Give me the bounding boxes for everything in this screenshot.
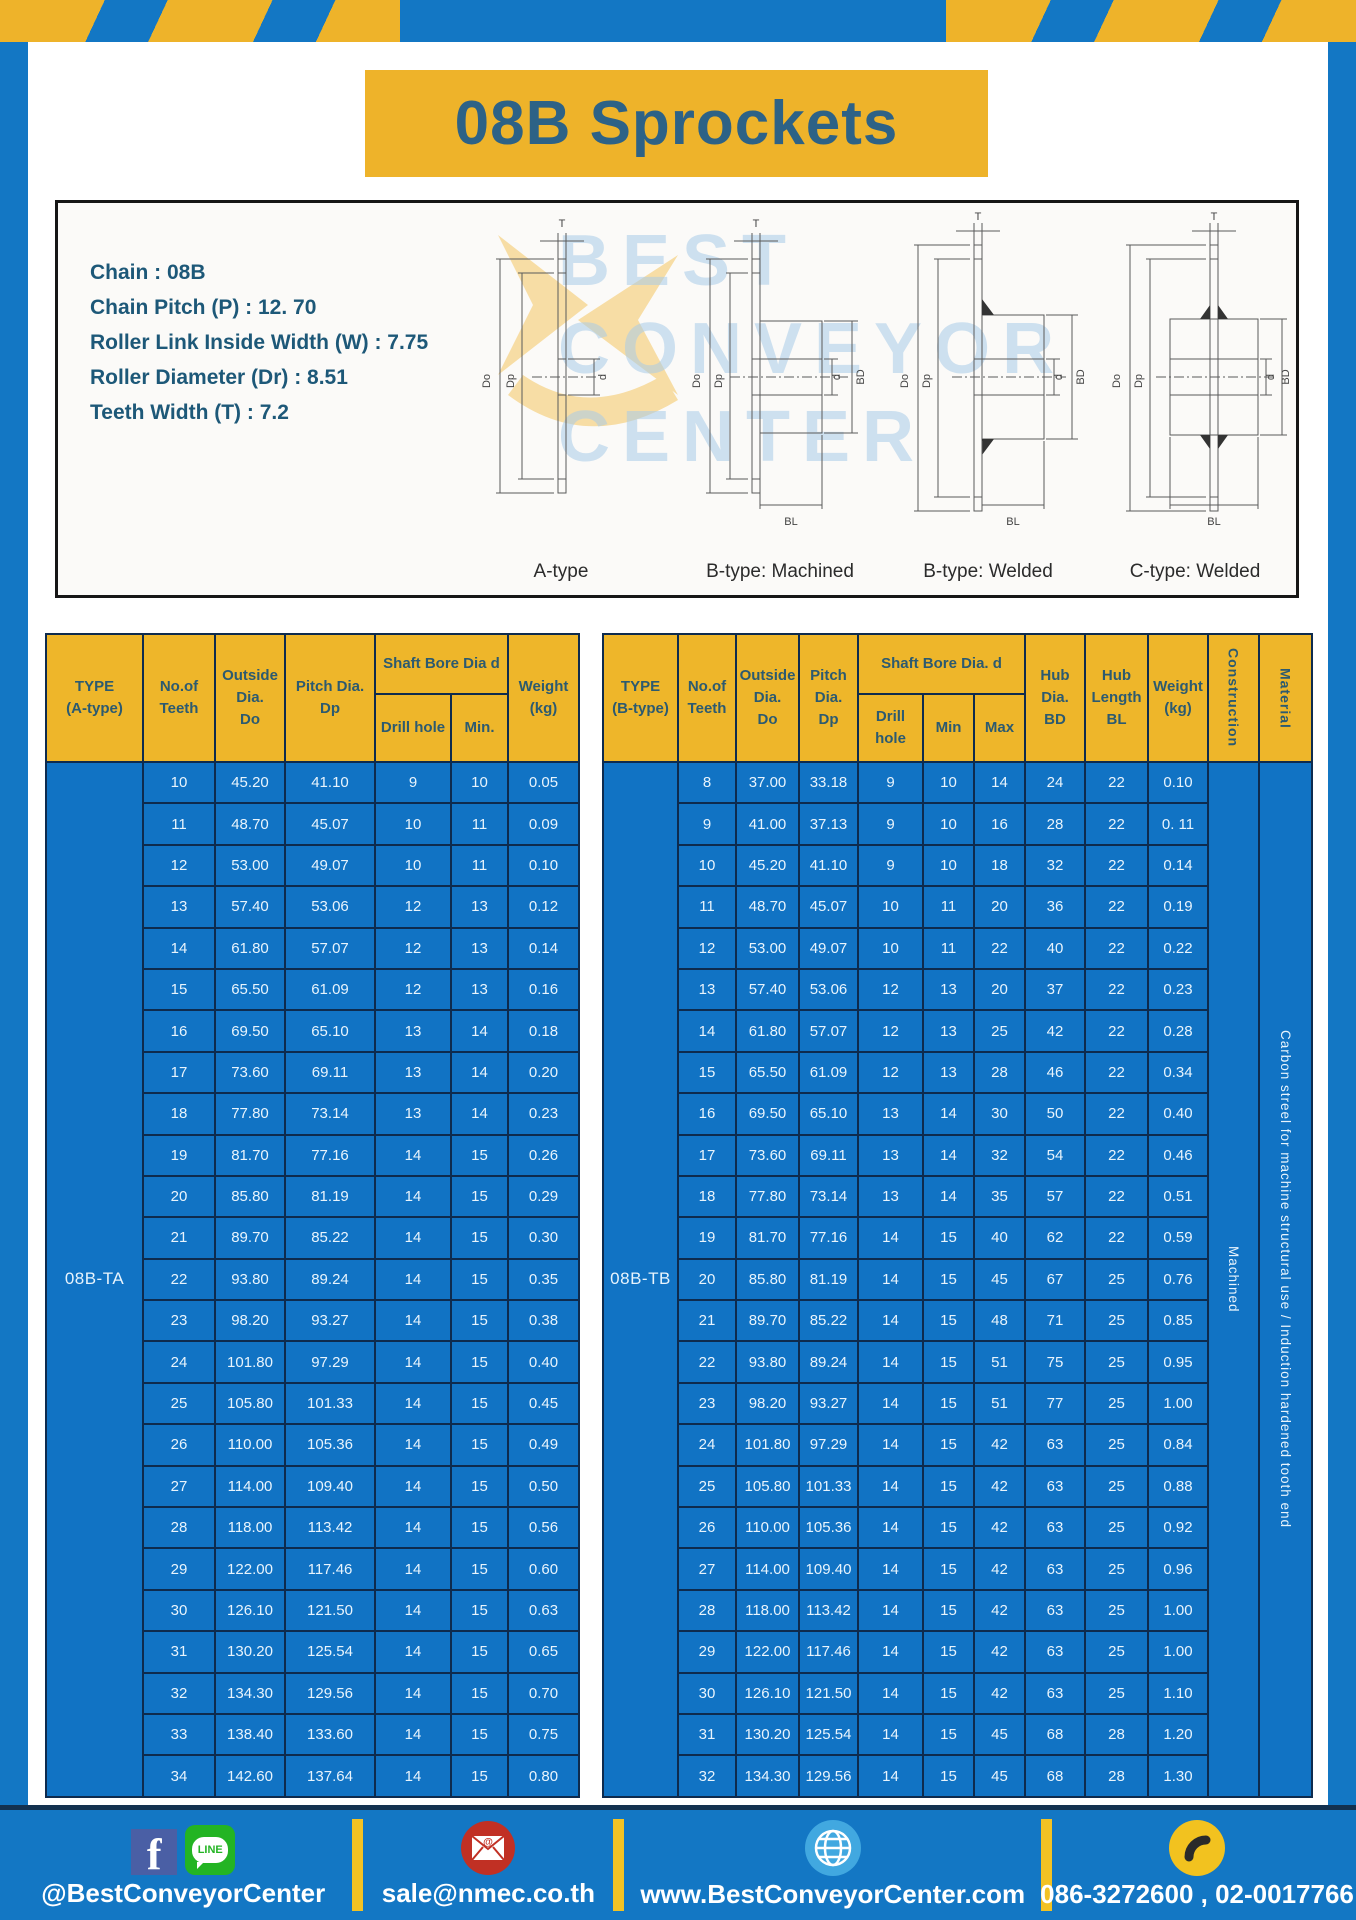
svg-text:T: T [753,218,760,230]
table-cell: 105.80 [736,1466,799,1507]
table-cell: 14 [375,1755,451,1796]
svg-text:BL: BL [1207,516,1220,528]
table-cell: 0.70 [508,1673,579,1714]
c-type-welded-drawing: T Do Dp [1100,211,1290,587]
table-cell: 130.20 [215,1631,285,1672]
table-row: 1253.0049.0710112240220.22 [603,928,1312,969]
table-cell: 16 [974,803,1025,844]
table-cell: 61.80 [736,1010,799,1051]
table-cell: 13 [451,886,508,927]
diagram-caption-c-welded: C-type: Welded [1130,561,1261,587]
table-cell: 30 [678,1673,736,1714]
table-cell: 57.07 [799,1010,858,1051]
table-cell: 10 [143,762,215,803]
table-cell: 14 [375,1217,451,1258]
table-cell: 0.26 [508,1135,579,1176]
table-cell: 0.59 [1148,1217,1208,1258]
col-shaft-bore-a: Shaft Bore Dia d [375,634,508,694]
table-cell: 0.12 [508,886,579,927]
table-cell: 0.50 [508,1466,579,1507]
vertical-text-cell: Machined [1208,762,1259,1797]
table-cell: 22 [1085,969,1148,1010]
footer-social: f LINE @BestConveyorCenter [14,1821,352,1909]
table-cell: 122.00 [215,1548,285,1589]
col-min-b: Min [923,694,974,762]
table-cell: 89.70 [215,1217,285,1258]
spec-roller-width: Roller Link Inside Width (W) : 7.75 [90,325,428,360]
svg-text:Dp: Dp [505,374,517,388]
table-cell: 10 [375,803,451,844]
table-cell: 45 [974,1259,1025,1300]
table-cell: 65.10 [799,1093,858,1134]
table-cell: 25 [1085,1631,1148,1672]
table-cell: 28 [143,1507,215,1548]
footer-phone: 086-3272600 , 02-0017766 [1052,1820,1342,1910]
table-cell: 0.95 [1148,1341,1208,1382]
table-cell: 121.50 [285,1590,375,1631]
table-cell: 98.20 [215,1300,285,1341]
phone-label: 086-3272600 , 02-0017766 [1040,1879,1354,1910]
line-icon: LINE [185,1825,235,1875]
table-cell: 22 [1085,845,1148,886]
table-cell: 14 [858,1217,923,1258]
table-row: 29122.00117.4614154263251.00 [603,1631,1312,1672]
table-cell: 33 [143,1714,215,1755]
table-cell: 81.70 [736,1217,799,1258]
table-cell: 17 [678,1135,736,1176]
col-hub-dia-b: Hub Dia. BD [1025,634,1085,762]
table-cell: 20 [678,1259,736,1300]
table-cell: 36 [1025,886,1085,927]
email-label: sale@nmec.co.th [382,1878,595,1909]
table-cell: 37.00 [736,762,799,803]
table-row: 1461.8057.0712132542220.28 [603,1010,1312,1051]
table-cell: 10 [858,886,923,927]
table-cell: 93.80 [736,1341,799,1382]
table-cell: 28 [1085,1714,1148,1755]
table-cell: 41.10 [285,762,375,803]
email-icon: @ [461,1821,515,1875]
table-cell: 113.42 [285,1507,375,1548]
page-title: 08B Sprockets [365,70,988,177]
table-cell: 42 [974,1673,1025,1714]
table-cell: 1.00 [1148,1383,1208,1424]
table-cell: 137.64 [285,1755,375,1796]
table-cell: 69.11 [285,1052,375,1093]
page-title-text: 08B Sprockets [455,88,899,159]
chain-specs: Chain : 08B Chain Pitch (P) : 12. 70 Rol… [90,255,428,430]
table-cell: 24 [678,1424,736,1465]
table-cell: 24 [1025,762,1085,803]
sprockets-table-a: TYPE (A-type) No.of Teeth Outside Dia. D… [45,633,580,1798]
table-cell: 114.00 [736,1548,799,1589]
table-cell: 109.40 [799,1548,858,1589]
table-cell: 23 [143,1300,215,1341]
table-cell: 15 [923,1300,974,1341]
table-cell: 12 [375,969,451,1010]
table-cell: 77 [1025,1383,1085,1424]
table-cell: 57.40 [736,969,799,1010]
table-cell: 134.30 [215,1673,285,1714]
table-cell: 71 [1025,1300,1085,1341]
table-cell: 30 [974,1093,1025,1134]
table-cell: 10 [923,845,974,886]
table-cell: 10 [923,762,974,803]
svg-text:BD: BD [855,369,867,384]
table-cell: 0.14 [1148,845,1208,886]
table-cell: 37 [1025,969,1085,1010]
svg-text:Do: Do [691,374,703,388]
table-cell: 75 [1025,1341,1085,1382]
table-cell: 77.80 [215,1093,285,1134]
table-cell: 89.24 [285,1259,375,1300]
table-cell: 14 [858,1466,923,1507]
table-cell: 16 [143,1010,215,1051]
table-cell: 0.35 [508,1259,579,1300]
table-cell: 109.40 [285,1466,375,1507]
table-cell: 42 [974,1631,1025,1672]
table-cell: 0.40 [1148,1093,1208,1134]
table-cell: 118.00 [215,1507,285,1548]
table-cell: 22 [1085,1093,1148,1134]
table-cell: 97.29 [285,1341,375,1382]
table-cell: 34 [143,1755,215,1796]
table-cell: 0.10 [508,845,579,886]
col-hub-length-b: Hub Length BL [1085,634,1148,762]
table-cell: 13 [858,1093,923,1134]
table-cell: 22 [1085,1176,1148,1217]
table-cell: 14 [375,1631,451,1672]
table-cell: 110.00 [215,1424,285,1465]
table-cell: 53.00 [215,845,285,886]
table-cell: 130.20 [736,1714,799,1755]
table-cell: 28 [1085,1755,1148,1796]
table-cell: 0.88 [1148,1466,1208,1507]
table-cell: 12 [678,928,736,969]
table-cell: 93.80 [215,1259,285,1300]
table-cell: 69.50 [215,1010,285,1051]
table-cell: 98.20 [736,1383,799,1424]
table-cell: 26 [678,1507,736,1548]
table-cell: 15 [451,1755,508,1796]
table-row: 1148.7045.0710112036220.19 [603,886,1312,927]
table-row: 2189.7085.2214154871250.85 [603,1300,1312,1341]
table-cell: 17 [143,1052,215,1093]
table-cell: 42 [974,1424,1025,1465]
table-cell: 15 [923,1507,974,1548]
table-cell: 37.13 [799,803,858,844]
vertical-text-cell: Carbon streel for machine structural use… [1259,762,1312,1797]
col-weight-b: Weight (kg) [1148,634,1208,762]
table-row: 32134.30129.5614154568281.30 [603,1755,1312,1796]
table-cell: 25 [1085,1300,1148,1341]
type-cell: 08B-TB [603,762,678,1797]
phone-icon [1169,1820,1225,1876]
table-cell: 15 [923,1217,974,1258]
table-cell: 54 [1025,1135,1085,1176]
table-cell: 14 [375,1135,451,1176]
table-row: 1045.2041.109101832220.14 [603,845,1312,886]
table-cell: 0.16 [508,969,579,1010]
table-cell: 0.40 [508,1341,579,1382]
svg-text:BD: BD [1075,369,1087,384]
table-cell: 1.20 [1148,1714,1208,1755]
table-cell: 69.11 [799,1135,858,1176]
table-cell: 11 [923,928,974,969]
a-type-drawing: T Do Dp d A-type [466,211,656,587]
table-cell: 15 [451,1590,508,1631]
table-cell: 63 [1025,1424,1085,1465]
table-cell: 89.24 [799,1341,858,1382]
table-cell: 0.34 [1148,1052,1208,1093]
table-cell: 18 [678,1176,736,1217]
table-cell: 15 [923,1341,974,1382]
table-cell: 9 [858,762,923,803]
table-cell: 63 [1025,1507,1085,1548]
table-cell: 14 [858,1548,923,1589]
table-cell: 0.29 [508,1176,579,1217]
table-cell: 0.23 [508,1093,579,1134]
table-cell: 77.16 [799,1217,858,1258]
table-cell: 97.29 [799,1424,858,1465]
col-type-a: TYPE (A-type) [46,634,143,762]
table-cell: 12 [858,1010,923,1051]
table-cell: 0.92 [1148,1507,1208,1548]
table-cell: 15 [923,1466,974,1507]
table-cell: 14 [375,1341,451,1382]
table-cell: 113.42 [799,1590,858,1631]
table-cell: 63 [1025,1631,1085,1672]
table-cell: 15 [923,1714,974,1755]
footer-divider [613,1819,624,1911]
table-cell: 45.07 [285,803,375,844]
table-cell: 110.00 [736,1507,799,1548]
table-cell: 15 [451,1176,508,1217]
svg-text:d: d [1053,374,1065,380]
table-cell: 53.06 [799,969,858,1010]
table-cell: 134.30 [736,1755,799,1796]
table-row: 2085.8081.1914154567250.76 [603,1259,1312,1300]
top-stripe-bar [0,0,1356,42]
table-cell: 85.80 [736,1259,799,1300]
col-pitch-b: Pitch Dia. Dp [799,634,858,762]
table-cell: 15 [451,1135,508,1176]
table-row: 2398.2093.2714155177251.00 [603,1383,1312,1424]
table-cell: 57.07 [285,928,375,969]
table-cell: 93.27 [799,1383,858,1424]
table-cell: 21 [678,1300,736,1341]
svg-text:BL: BL [784,516,797,528]
table-cell: 15 [451,1217,508,1258]
table-cell: 22 [678,1341,736,1382]
table-cell: 22 [1085,1217,1148,1258]
svg-text:Dp: Dp [1133,374,1145,388]
table-cell: 26 [143,1424,215,1465]
table-cell: 13 [858,1176,923,1217]
svg-text:Do: Do [899,374,911,388]
table-cell: 32 [143,1673,215,1714]
table-cell: 41.10 [799,845,858,886]
col-max-b: Max [974,694,1025,762]
table-cell: 50 [1025,1093,1085,1134]
table-cell: 14 [375,1714,451,1755]
table-cell: 1.30 [1148,1755,1208,1796]
table-cell: 22 [143,1259,215,1300]
table-cell: 14 [375,1548,451,1589]
table-cell: 25 [143,1383,215,1424]
table-cell: 14 [858,1300,923,1341]
table-row: 1773.6069.1113143254220.46 [603,1135,1312,1176]
table-cell: 0.38 [508,1300,579,1341]
table-cell: 57 [1025,1176,1085,1217]
table-cell: 12 [858,1052,923,1093]
table-cell: 105.36 [799,1507,858,1548]
table-cell: 18 [974,845,1025,886]
col-drill-b: Drill hole [858,694,923,762]
col-shaft-bore-b: Shaft Bore Dia. d [858,634,1025,694]
website-label: www.BestConveyorCenter.com [640,1879,1025,1910]
table-cell: 61.09 [285,969,375,1010]
table-cell: 53.06 [285,886,375,927]
table-cell: 32 [1025,845,1085,886]
table-cell: 101.33 [799,1466,858,1507]
table-cell: 0.75 [508,1714,579,1755]
table-cell: 28 [1025,803,1085,844]
footer-email: @ sale@nmec.co.th [363,1821,613,1909]
table-cell: 61.80 [215,928,285,969]
table-cell: 101.80 [215,1341,285,1382]
table-cell: 13 [451,969,508,1010]
table-cell: 0.49 [508,1424,579,1465]
col-outside-a: Outside Dia. Do [215,634,285,762]
table-cell: 126.10 [215,1590,285,1631]
table-cell: 9 [858,803,923,844]
col-material-b: Material [1259,634,1312,762]
table-cell: 12 [375,886,451,927]
b-type-welded-drawing: T Do Dp d [888,211,1088,587]
table-cell: 15 [451,1466,508,1507]
table-cell: 48.70 [736,886,799,927]
table-cell: 14 [858,1383,923,1424]
table-cell: 25 [1085,1424,1148,1465]
table-cell: 42 [974,1507,1025,1548]
svg-text:BL: BL [1006,516,1019,528]
table-cell: 27 [678,1548,736,1589]
table-cell: 13 [858,1135,923,1176]
table-cell: 73.60 [215,1052,285,1093]
table-cell: 12 [143,845,215,886]
table-cell: 15 [451,1673,508,1714]
table-cell: 15 [923,1590,974,1631]
table-cell: 0.20 [508,1052,579,1093]
table-cell: 0.10 [1148,762,1208,803]
table-row: 24101.8097.2914154263250.84 [603,1424,1312,1465]
table-cell: 25 [678,1466,736,1507]
table-cell: 42 [1025,1010,1085,1051]
table-cell: 42 [974,1590,1025,1631]
table-cell: 19 [678,1217,736,1258]
table-cell: 0.63 [508,1590,579,1631]
table-cell: 13 [143,886,215,927]
table-cell: 10 [858,928,923,969]
footer-divider [352,1819,363,1911]
table-cell: 1.10 [1148,1673,1208,1714]
svg-text:Do: Do [481,374,493,388]
table-cell: 9 [858,845,923,886]
table-cell: 14 [375,1590,451,1631]
col-drill-a: Drill hole [375,694,451,762]
table-cell: 15 [451,1259,508,1300]
table-cell: 0.80 [508,1755,579,1796]
table-cell: 121.50 [799,1673,858,1714]
table-cell: 25 [1085,1507,1148,1548]
table-cell: 67 [1025,1259,1085,1300]
table-cell: 105.36 [285,1424,375,1465]
table-cell: 11 [143,803,215,844]
table-cell: 138.40 [215,1714,285,1755]
table-cell: 33.18 [799,762,858,803]
table-cell: 49.07 [285,845,375,886]
table-cell: 68 [1025,1714,1085,1755]
svg-text:Dp: Dp [921,374,933,388]
table-cell: 57.40 [215,886,285,927]
table-cell: 73.60 [736,1135,799,1176]
table-cell: 25 [1085,1383,1148,1424]
svg-text:d: d [597,374,609,380]
table-cell: 49.07 [799,928,858,969]
table-cell: 14 [375,1176,451,1217]
table-cell: 117.46 [799,1631,858,1672]
social-handle-label: @BestConveyorCenter [41,1878,325,1909]
table-cell: 13 [375,1052,451,1093]
table-cell: 22 [1085,803,1148,844]
table-row: 1565.5061.0912132846220.34 [603,1052,1312,1093]
table-cell: 9 [375,762,451,803]
footer-website: www.BestConveyorCenter.com [624,1820,1041,1910]
table-cell: 31 [678,1714,736,1755]
spec-teeth-width: Teeth Width (T) : 7.2 [90,395,428,430]
table-cell: 11 [923,886,974,927]
table-cell: 0.05 [508,762,579,803]
table-cell: 14 [858,1507,923,1548]
table-cell: 85.80 [215,1176,285,1217]
col-construction-b: Construction [1208,634,1259,762]
content-area: 08B Sprockets BEST CONVEYOR CENTER Chain… [28,42,1328,1805]
table-cell: 77.80 [736,1176,799,1217]
table-cell: 25 [1085,1341,1148,1382]
table-cell: 0.18 [508,1010,579,1051]
diagram-caption-b-welded: B-type: Welded [923,561,1053,587]
svg-text:BD: BD [1280,369,1290,384]
table-cell: 20 [974,886,1025,927]
stripe-decoration-right [946,0,1356,42]
table-cell: 0.45 [508,1383,579,1424]
spec-pitch: Chain Pitch (P) : 12. 70 [90,290,428,325]
table-cell: 20 [974,969,1025,1010]
table-cell: 40 [1025,928,1085,969]
table-cell: 14 [451,1093,508,1134]
table-a-body: 08B-TA1045.2041.109100.051148.7045.07101… [46,762,579,1797]
table-cell: 11 [451,845,508,886]
table-b-body: 08B-TB837.0033.189101424220.10MachinedCa… [603,762,1312,1797]
table-cell: 14 [858,1714,923,1755]
sprockets-table-b: TYPE (B-type) No.of Teeth Outside Dia. D… [602,633,1313,1798]
table-cell: 85.22 [285,1217,375,1258]
table-cell: 0.65 [508,1631,579,1672]
table-cell: 35 [974,1176,1025,1217]
table-cell: 14 [858,1631,923,1672]
table-cell: 14 [143,928,215,969]
